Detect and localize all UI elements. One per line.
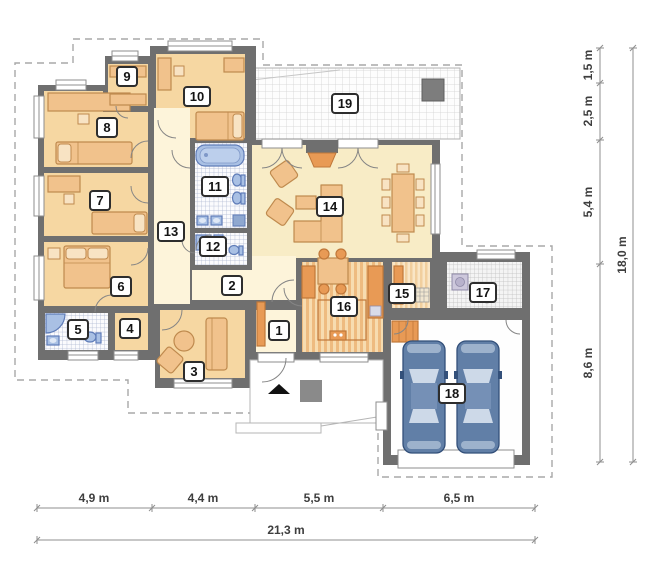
garage-side-door bbox=[376, 402, 387, 430]
dimension-bottom: 4,9 m 4,4 m 5,5 m 6,5 m 21,3 m bbox=[34, 491, 538, 544]
label-room-10: 10 bbox=[184, 87, 210, 106]
label-room-12: 12 bbox=[200, 237, 226, 256]
label-room-15: 15 bbox=[389, 284, 415, 303]
coffee-table bbox=[296, 196, 316, 209]
svg-text:9: 9 bbox=[123, 69, 130, 84]
svg-text:4: 4 bbox=[126, 321, 134, 336]
svg-text:18,0 m: 18,0 m bbox=[615, 236, 629, 273]
floor-plan-drawing: 1 2 3 4 5 6 7 8 9 10 11 12 13 14 15 16 1… bbox=[0, 0, 660, 566]
svg-text:18: 18 bbox=[445, 386, 459, 401]
label-room-14: 14 bbox=[317, 197, 343, 216]
label-room-11: 11 bbox=[202, 177, 228, 196]
svg-text:3: 3 bbox=[190, 364, 197, 379]
svg-text:11: 11 bbox=[208, 179, 222, 194]
label-room-2: 2 bbox=[222, 276, 242, 295]
svg-text:8,6 m: 8,6 m bbox=[581, 348, 595, 379]
terrace-door-right bbox=[338, 139, 378, 148]
front-door-opening bbox=[258, 353, 294, 362]
label-room-19: 19 bbox=[332, 94, 358, 113]
svg-text:4,9 m: 4,9 m bbox=[79, 491, 110, 505]
chimney bbox=[422, 79, 444, 101]
label-room-13: 13 bbox=[158, 222, 184, 241]
svg-text:1,5 m: 1,5 m bbox=[581, 50, 595, 81]
svg-text:17: 17 bbox=[476, 285, 490, 300]
label-room-16: 16 bbox=[331, 297, 357, 316]
dining-table bbox=[392, 174, 414, 232]
svg-text:2: 2 bbox=[228, 278, 235, 293]
label-room-17: 17 bbox=[470, 283, 496, 302]
floor-plan-page: 1 2 3 4 5 6 7 8 9 10 11 12 13 14 15 16 1… bbox=[0, 0, 660, 566]
svg-text:10: 10 bbox=[190, 89, 204, 104]
svg-text:2,5 m: 2,5 m bbox=[581, 96, 595, 127]
svg-text:19: 19 bbox=[338, 96, 352, 111]
svg-text:15: 15 bbox=[395, 286, 409, 301]
label-room-18: 18 bbox=[439, 384, 465, 403]
svg-text:13: 13 bbox=[164, 224, 178, 239]
porch-post bbox=[300, 380, 322, 402]
garage-steps bbox=[392, 321, 418, 342]
svg-text:21,3 m: 21,3 m bbox=[267, 523, 304, 537]
dimension-right: 1,5 m 2,5 m 5,4 m 8,6 m 18,0 m bbox=[581, 45, 637, 465]
label-room-6: 6 bbox=[111, 277, 131, 296]
vestibule-closet bbox=[257, 302, 265, 346]
svg-text:8: 8 bbox=[103, 120, 110, 135]
label-room-5: 5 bbox=[68, 320, 88, 339]
svg-text:5,4 m: 5,4 m bbox=[581, 187, 595, 218]
svg-text:12: 12 bbox=[206, 239, 220, 254]
label-room-4: 4 bbox=[120, 319, 140, 338]
svg-text:16: 16 bbox=[337, 299, 351, 314]
svg-text:6: 6 bbox=[117, 279, 124, 294]
entrance-porch bbox=[236, 360, 383, 433]
svg-text:4,4 m: 4,4 m bbox=[188, 491, 219, 505]
kitchen-table bbox=[318, 258, 348, 284]
label-room-8: 8 bbox=[97, 118, 117, 137]
svg-text:7: 7 bbox=[96, 193, 103, 208]
svg-text:5: 5 bbox=[74, 322, 81, 337]
label-room-1: 1 bbox=[269, 321, 289, 340]
svg-text:14: 14 bbox=[323, 199, 338, 214]
label-room-7: 7 bbox=[90, 191, 110, 210]
label-room-3: 3 bbox=[184, 362, 204, 381]
svg-text:6,5 m: 6,5 m bbox=[444, 491, 475, 505]
label-room-9: 9 bbox=[117, 67, 137, 86]
terrace-door-left bbox=[262, 139, 302, 148]
svg-text:5,5 m: 5,5 m bbox=[304, 491, 335, 505]
svg-text:1: 1 bbox=[275, 323, 282, 338]
